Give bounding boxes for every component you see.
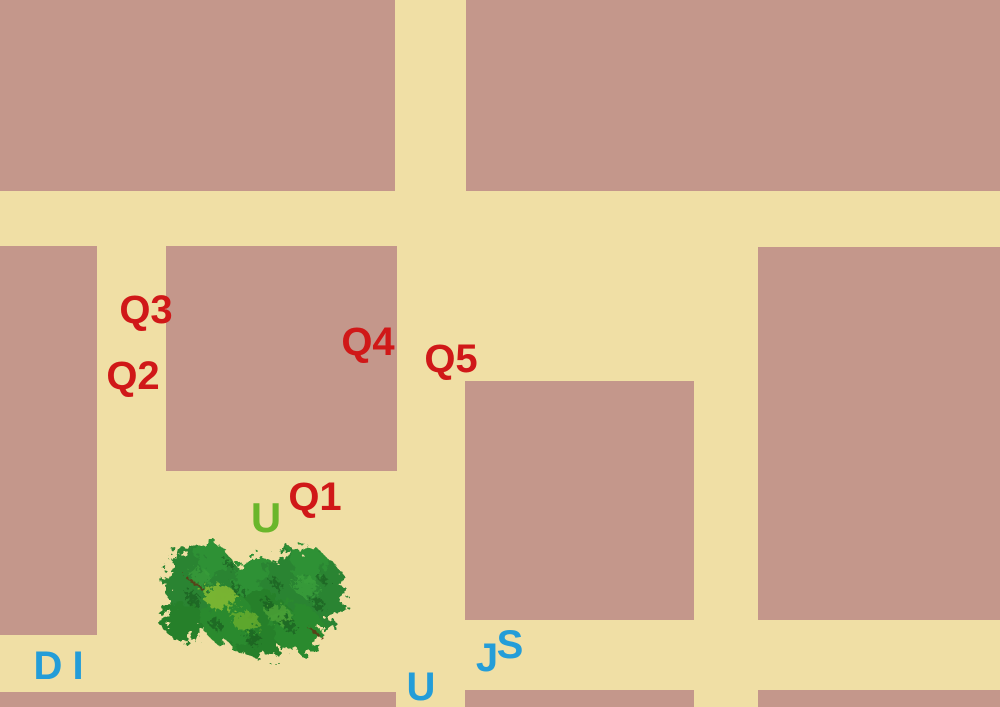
tree-canopy-graphic bbox=[158, 529, 358, 665]
map-label-Q5[interactable]: Q5 bbox=[424, 339, 477, 379]
city-block-mid-center bbox=[465, 381, 694, 620]
city-block-mid-left bbox=[0, 246, 97, 635]
map-label-Q1[interactable]: Q1 bbox=[288, 477, 341, 517]
map-label-J[interactable]: J bbox=[476, 638, 498, 678]
city-block-top-right bbox=[466, 0, 1000, 191]
map-label-D[interactable]: D bbox=[34, 646, 63, 686]
city-block-top-left bbox=[0, 0, 395, 191]
street-map[interactable]: Q1Q2Q3Q4Q5UDIUJS bbox=[0, 0, 1000, 707]
city-block-bottom-center bbox=[465, 690, 694, 707]
city-block-bottom-right bbox=[758, 690, 1000, 707]
map-label-S[interactable]: S bbox=[497, 625, 524, 665]
city-block-bottom-left bbox=[0, 692, 396, 707]
map-label-Q3[interactable]: Q3 bbox=[119, 290, 172, 330]
map-label-Q4[interactable]: Q4 bbox=[341, 322, 394, 362]
tree bbox=[158, 529, 358, 665]
city-block-right bbox=[758, 247, 1000, 620]
map-label-U-blue[interactable]: U bbox=[407, 667, 436, 707]
map-label-Q2[interactable]: Q2 bbox=[106, 356, 159, 396]
map-label-I[interactable]: I bbox=[72, 646, 83, 686]
